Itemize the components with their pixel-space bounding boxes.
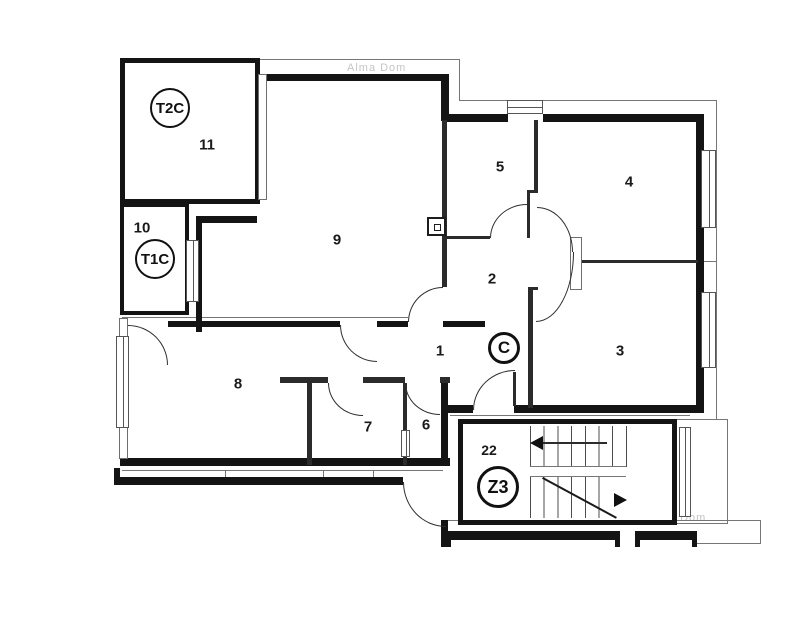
room-label-4: 4 bbox=[625, 174, 633, 191]
wall bbox=[635, 531, 697, 540]
wall bbox=[377, 321, 408, 327]
wall bbox=[120, 458, 450, 466]
unit-badge-c: C bbox=[488, 332, 520, 364]
stair-direction-arrow-icon bbox=[530, 436, 543, 450]
outline-line bbox=[703, 261, 716, 262]
shaft-symbol bbox=[427, 217, 446, 236]
outline-line bbox=[760, 520, 761, 544]
outline-line bbox=[122, 470, 443, 471]
wall bbox=[446, 114, 508, 122]
door-arc-terrace-exit bbox=[403, 482, 446, 527]
stair-landing-line bbox=[530, 466, 626, 467]
door-arc-room6 bbox=[405, 383, 440, 415]
wall bbox=[363, 377, 405, 383]
wall bbox=[443, 321, 485, 327]
outline-line bbox=[677, 419, 728, 420]
room-label-5: 5 bbox=[496, 159, 504, 176]
floor-plan-canvas: Alma Dom Alma Dom Alma Dom bbox=[0, 0, 792, 631]
door-arc-room7 bbox=[328, 383, 363, 416]
room-label-3: 3 bbox=[616, 343, 624, 360]
window bbox=[401, 430, 410, 457]
wall bbox=[446, 236, 490, 239]
wall bbox=[528, 290, 533, 408]
wall bbox=[514, 405, 704, 413]
wall bbox=[442, 120, 447, 287]
outline-line bbox=[716, 100, 717, 420]
wall bbox=[114, 468, 120, 485]
door-arc-room3 bbox=[536, 252, 574, 322]
room-label-9: 9 bbox=[333, 232, 341, 249]
room-label-10: 10 bbox=[134, 220, 151, 237]
unit-badge-t2c: T2C bbox=[150, 88, 190, 128]
wall bbox=[534, 120, 538, 192]
wall bbox=[168, 321, 340, 327]
wall bbox=[582, 260, 698, 263]
room-label-2: 2 bbox=[488, 271, 496, 288]
door-arc-room4 bbox=[537, 207, 573, 252]
window bbox=[507, 100, 543, 114]
window bbox=[186, 240, 199, 302]
room-label-8: 8 bbox=[234, 376, 242, 393]
door-arc-entrance bbox=[473, 370, 515, 410]
wall bbox=[615, 531, 620, 547]
wall bbox=[307, 380, 312, 465]
room-label-7: 7 bbox=[364, 419, 372, 436]
window bbox=[701, 150, 716, 228]
stair-treads-upper bbox=[530, 426, 627, 467]
room-11-terrace bbox=[120, 58, 260, 204]
wall bbox=[527, 192, 530, 238]
wall bbox=[440, 377, 450, 383]
wall bbox=[441, 383, 448, 465]
shaft-strip bbox=[258, 74, 267, 200]
room-label-1: 1 bbox=[436, 343, 444, 360]
stair-direction-arrow-icon bbox=[614, 493, 627, 507]
window bbox=[701, 292, 716, 368]
wall bbox=[446, 531, 620, 540]
room-label-22: 22 bbox=[481, 442, 497, 458]
room-label-6: 6 bbox=[422, 417, 430, 434]
outline-line bbox=[727, 419, 728, 524]
stair-treads-lower bbox=[530, 477, 609, 518]
outline-line bbox=[450, 415, 690, 416]
window bbox=[679, 427, 691, 517]
wall bbox=[196, 216, 257, 223]
door-arc-room9 bbox=[408, 287, 443, 322]
outline-line bbox=[697, 543, 761, 544]
door-arc-room5 bbox=[490, 204, 527, 238]
unit-badge-z3: Z3 bbox=[477, 466, 519, 508]
watermark-text: Alma Dom bbox=[347, 62, 406, 74]
wall bbox=[692, 531, 697, 547]
outline-line bbox=[459, 100, 717, 101]
wall bbox=[266, 74, 448, 81]
wall bbox=[116, 477, 403, 485]
outline-line bbox=[677, 523, 728, 524]
wall bbox=[280, 377, 328, 383]
outline-line bbox=[255, 59, 460, 60]
door-arc-room8 bbox=[340, 325, 377, 362]
wall bbox=[635, 531, 640, 547]
outline-line bbox=[122, 317, 408, 318]
outline-line bbox=[459, 59, 460, 101]
unit-badge-t1c: T1C bbox=[135, 239, 175, 279]
stair-arrow-tail bbox=[543, 442, 607, 444]
door-arc-room8-terrace bbox=[128, 325, 168, 365]
wall bbox=[543, 114, 704, 122]
room-label-11: 11 bbox=[199, 137, 215, 154]
